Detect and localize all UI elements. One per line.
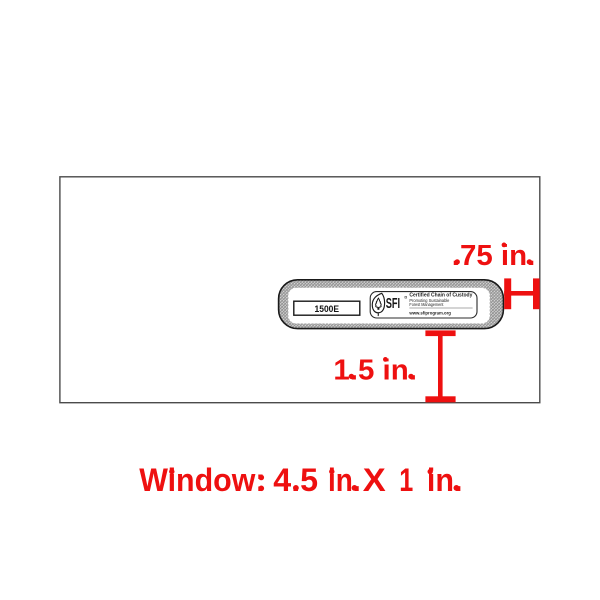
svg-text:SFI: SFI [386,295,400,312]
svg-text:Forest Management: Forest Management [409,302,444,307]
svg-text:X: X [363,462,386,498]
svg-text:4.5: 4.5 [273,462,318,498]
svg-text:1500E: 1500E [315,304,340,314]
svg-text:1: 1 [399,462,413,498]
svg-text:www.sfiprogram.org: www.sfiprogram.org [408,310,451,315]
svg-text:in.: in. [427,462,463,498]
svg-text:in.: in. [328,462,361,498]
svg-text:1.5 in.: 1.5 in. [333,354,417,386]
svg-text:Window:: Window: [139,462,265,498]
svg-text:.75 in.: .75 in. [452,240,536,272]
